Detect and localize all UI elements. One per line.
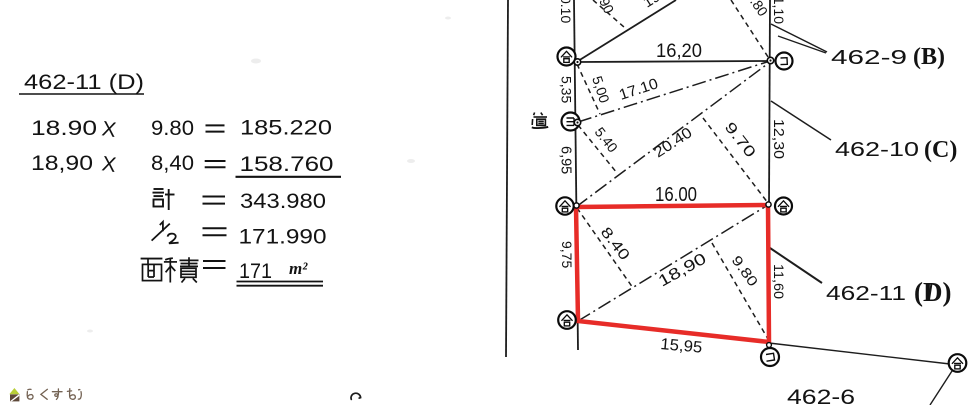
svg-text:16,20: 16,20 <box>656 41 702 62</box>
svg-text:8.40: 8.40 <box>597 224 633 264</box>
svg-text:X: X <box>100 117 117 142</box>
svg-text:(D): (D) <box>914 277 951 307</box>
svg-text:9.70: 9.70 <box>721 119 759 161</box>
svg-text:15,95: 15,95 <box>660 336 703 357</box>
svg-text:171.990: 171.990 <box>239 226 327 249</box>
svg-text:185.220: 185.220 <box>240 117 332 140</box>
svg-text:6,95: 6,95 <box>558 146 574 174</box>
svg-text:(C): (C) <box>924 137 957 163</box>
svg-text:X: X <box>100 152 117 177</box>
svg-text:9.80: 9.80 <box>151 117 194 140</box>
svg-text:9.80: 9.80 <box>729 252 762 289</box>
svg-text:(B): (B) <box>913 44 945 70</box>
svg-text:462-6: 462-6 <box>787 386 855 405</box>
svg-text:5.80: 5.80 <box>743 0 772 19</box>
svg-text:343.980: 343.980 <box>240 190 326 213</box>
svg-text:11,10: 11,10 <box>771 0 787 24</box>
svg-text:16.00: 16.00 <box>655 184 697 206</box>
svg-text:8,40: 8,40 <box>151 152 194 175</box>
svg-text:m²: m² <box>289 259 308 278</box>
svg-text:5,00: 5,00 <box>589 74 613 105</box>
svg-text:19.5: 19.5 <box>640 0 674 11</box>
svg-text:5,35: 5,35 <box>559 76 575 103</box>
svg-text:18.90: 18.90 <box>31 117 97 140</box>
svg-text:462-11 (D): 462-11 (D) <box>24 71 144 94</box>
svg-text:17.10: 17.10 <box>617 75 660 104</box>
svg-text:5.40: 5.40 <box>592 124 622 155</box>
svg-text:12,30: 12,30 <box>770 119 787 159</box>
svg-text:462-11: 462-11 <box>826 283 906 305</box>
svg-text:462-10: 462-10 <box>835 139 919 161</box>
svg-text:18,90: 18,90 <box>31 152 93 175</box>
svg-text:11,60: 11,60 <box>771 264 787 299</box>
svg-text:20.40: 20.40 <box>651 124 695 161</box>
svg-text:0.10: 0.10 <box>558 0 574 23</box>
svg-text:171: 171 <box>239 260 272 283</box>
svg-text:158.760: 158.760 <box>240 153 334 176</box>
svg-text:9,75: 9,75 <box>559 241 575 268</box>
svg-text:462-9: 462-9 <box>831 47 907 69</box>
